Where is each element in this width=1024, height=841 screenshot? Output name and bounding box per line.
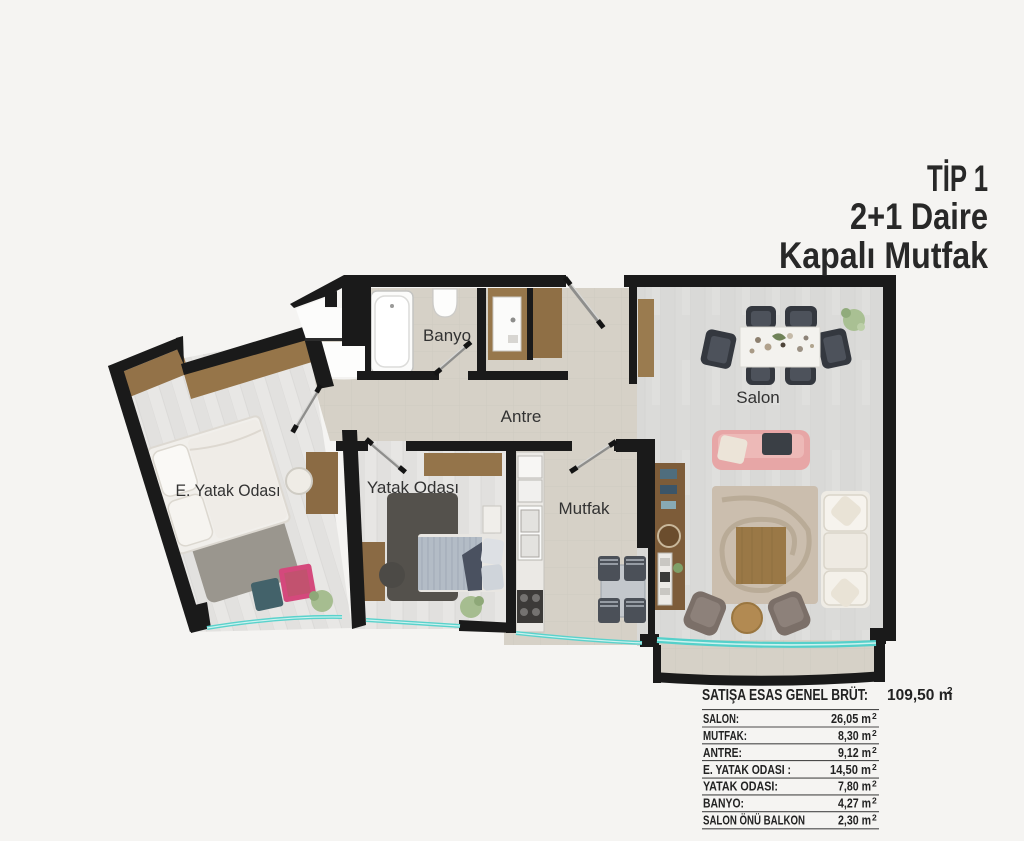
svg-text:Antre: Antre	[501, 407, 542, 426]
svg-text:ANTRE:: ANTRE:	[703, 746, 742, 760]
svg-text:14,50 m: 14,50 m	[830, 763, 871, 777]
svg-text:2: 2	[872, 779, 877, 789]
svg-text:2: 2	[872, 813, 877, 823]
svg-text:E. YATAK ODASI :: E. YATAK ODASI :	[703, 763, 791, 777]
svg-text:Mutfak: Mutfak	[558, 499, 610, 518]
svg-text:MUTFAK:: MUTFAK:	[703, 729, 747, 743]
svg-text:Kapalı Mutfak: Kapalı Mutfak	[779, 235, 988, 276]
svg-text:Salon: Salon	[736, 388, 779, 407]
svg-text:2: 2	[947, 686, 953, 697]
svg-text:2: 2	[872, 745, 877, 755]
svg-text:2: 2	[872, 711, 877, 721]
svg-text:SALON ÖNÜ BALKON: SALON ÖNÜ BALKON	[703, 813, 805, 828]
svg-text:2: 2	[872, 762, 877, 772]
svg-text:109,50 m: 109,50 m	[887, 687, 953, 704]
svg-text:26,05 m: 26,05 m	[831, 712, 871, 726]
svg-text:2+1 Daire: 2+1 Daire	[850, 196, 988, 237]
svg-text:TİP 1: TİP 1	[927, 158, 988, 199]
svg-text:2: 2	[872, 796, 877, 806]
svg-text:2,30 m: 2,30 m	[838, 814, 871, 828]
svg-text:2: 2	[872, 728, 877, 738]
svg-text:7,80 m: 7,80 m	[838, 780, 871, 794]
svg-text:8,30 m: 8,30 m	[838, 729, 871, 743]
svg-text:YATAK ODASI:: YATAK ODASI:	[703, 780, 778, 794]
svg-text:E. Yatak Odası: E. Yatak Odası	[176, 481, 281, 500]
svg-text:Banyo: Banyo	[423, 326, 471, 345]
svg-text:BANYO:: BANYO:	[703, 797, 744, 811]
svg-text:4,27 m: 4,27 m	[838, 797, 871, 811]
svg-text:Yatak Odası: Yatak Odası	[367, 478, 459, 497]
svg-text:9,12 m: 9,12 m	[838, 746, 871, 760]
svg-text:SALON:: SALON:	[703, 712, 739, 726]
svg-text:SATIŞA ESAS GENEL BRÜT:: SATIŞA ESAS GENEL BRÜT:	[702, 687, 868, 704]
